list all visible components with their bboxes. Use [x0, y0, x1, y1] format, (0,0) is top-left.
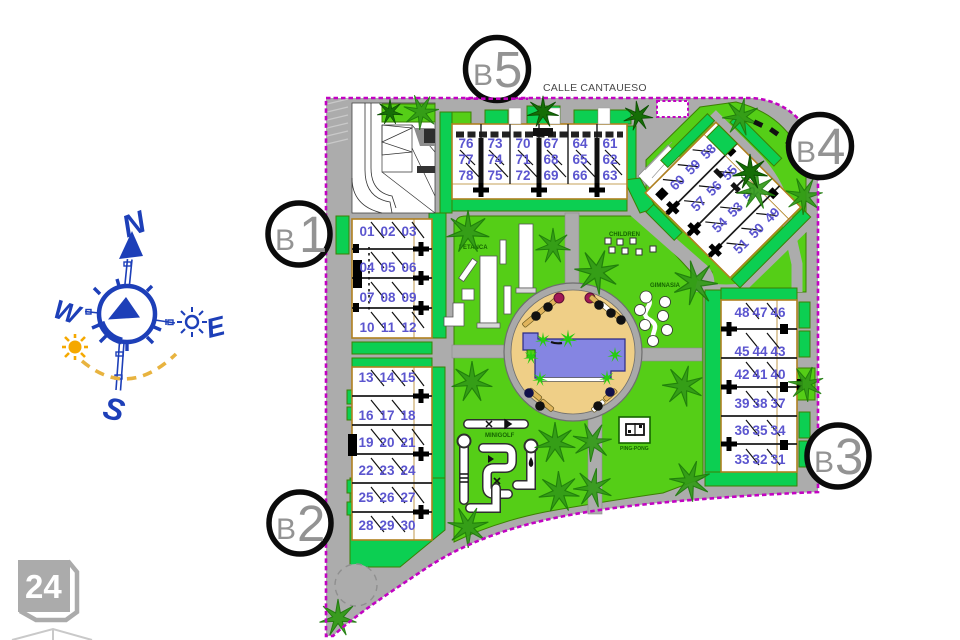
svg-text:74: 74 — [487, 152, 503, 167]
svg-text:38: 38 — [752, 396, 768, 411]
svg-text:47: 47 — [752, 305, 767, 320]
svg-text:30: 30 — [400, 518, 415, 533]
svg-text:04: 04 — [359, 260, 375, 275]
svg-text:44: 44 — [752, 344, 768, 359]
svg-text:76: 76 — [458, 136, 474, 151]
svg-text:11: 11 — [381, 320, 396, 335]
svg-text:66: 66 — [572, 168, 588, 183]
svg-text:01: 01 — [359, 224, 375, 239]
svg-text:41: 41 — [752, 367, 768, 382]
svg-text:33: 33 — [734, 452, 750, 467]
svg-text:MINIGOLF: MINIGOLF — [485, 433, 515, 439]
svg-text:16: 16 — [358, 408, 374, 423]
svg-text:42: 42 — [734, 367, 749, 382]
svg-text:35: 35 — [752, 423, 768, 438]
svg-text:B: B — [796, 136, 816, 169]
svg-text:03: 03 — [401, 224, 417, 239]
svg-text:CALLE CANTAUESO: CALLE CANTAUESO — [543, 82, 647, 94]
svg-text:PING-PONG: PING-PONG — [620, 446, 649, 452]
svg-text:29: 29 — [379, 518, 394, 533]
svg-text:71: 71 — [515, 152, 531, 167]
svg-text:B: B — [814, 446, 834, 479]
svg-text:64: 64 — [572, 136, 588, 151]
svg-text:17: 17 — [379, 408, 394, 423]
svg-text:22: 22 — [358, 463, 373, 478]
svg-text:B: B — [276, 513, 296, 546]
svg-text:23: 23 — [379, 463, 395, 478]
svg-text:39: 39 — [734, 396, 749, 411]
svg-text:1: 1 — [299, 206, 327, 263]
svg-text:24: 24 — [25, 568, 62, 605]
svg-text:72: 72 — [515, 168, 530, 183]
svg-text:S: S — [100, 390, 129, 429]
svg-text:48: 48 — [734, 305, 750, 320]
svg-text:45: 45 — [734, 344, 750, 359]
svg-text:19: 19 — [358, 435, 373, 450]
svg-text:B: B — [275, 224, 295, 257]
svg-text:15: 15 — [400, 370, 416, 385]
svg-text:78: 78 — [458, 168, 474, 183]
svg-text:10: 10 — [359, 320, 374, 335]
svg-text:06: 06 — [401, 260, 417, 275]
svg-text:70: 70 — [515, 136, 530, 151]
svg-text:20: 20 — [379, 435, 394, 450]
svg-text:65: 65 — [572, 152, 588, 167]
svg-text:61: 61 — [602, 136, 618, 151]
svg-text:34: 34 — [770, 423, 786, 438]
svg-text:GIMNASIA: GIMNASIA — [650, 283, 681, 289]
svg-text:40: 40 — [770, 367, 785, 382]
svg-text:4: 4 — [817, 118, 845, 175]
svg-text:77: 77 — [458, 152, 473, 167]
svg-text:21: 21 — [400, 435, 416, 450]
svg-text:E: E — [203, 310, 229, 344]
svg-text:CHILDREN: CHILDREN — [609, 232, 640, 238]
svg-text:67: 67 — [543, 136, 558, 151]
svg-text:68: 68 — [543, 152, 559, 167]
svg-text:B: B — [473, 59, 493, 92]
svg-text:02: 02 — [380, 224, 395, 239]
svg-text:5: 5 — [494, 41, 522, 98]
svg-text:09: 09 — [401, 290, 416, 305]
svg-text:75: 75 — [487, 168, 503, 183]
svg-text:27: 27 — [400, 490, 415, 505]
svg-text:25: 25 — [358, 490, 374, 505]
svg-text:37: 37 — [770, 396, 785, 411]
svg-text:73: 73 — [487, 136, 503, 151]
svg-text:18: 18 — [400, 408, 416, 423]
svg-text:12: 12 — [401, 320, 416, 335]
svg-text:26: 26 — [379, 490, 395, 505]
svg-text:36: 36 — [734, 423, 750, 438]
svg-text:31: 31 — [770, 452, 786, 467]
svg-text:63: 63 — [602, 168, 618, 183]
svg-text:2: 2 — [297, 495, 325, 552]
svg-text:69: 69 — [543, 168, 558, 183]
svg-text:32: 32 — [752, 452, 767, 467]
svg-text:W: W — [50, 294, 86, 331]
svg-text:43: 43 — [770, 344, 786, 359]
svg-text:05: 05 — [380, 260, 396, 275]
svg-text:08: 08 — [380, 290, 396, 305]
svg-text:62: 62 — [602, 152, 617, 167]
svg-text:28: 28 — [358, 518, 374, 533]
svg-text:13: 13 — [358, 370, 374, 385]
svg-text:24: 24 — [400, 463, 416, 478]
svg-text:3: 3 — [835, 428, 863, 485]
svg-text:07: 07 — [359, 290, 374, 305]
svg-text:46: 46 — [770, 305, 786, 320]
svg-text:14: 14 — [379, 370, 395, 385]
